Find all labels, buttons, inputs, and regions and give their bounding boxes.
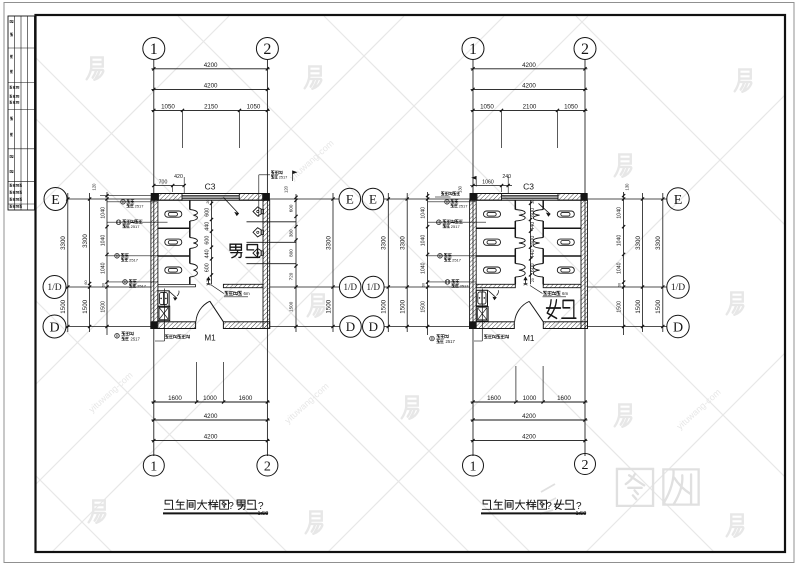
svg-text:600: 600 <box>530 263 536 272</box>
svg-text:1040: 1040 <box>100 207 106 219</box>
svg-text:60: 60 <box>422 283 426 287</box>
svg-text:1500: 1500 <box>82 299 89 313</box>
svg-text:1: 1 <box>470 459 477 474</box>
svg-text:C3: C3 <box>523 182 534 192</box>
svg-text:440: 440 <box>530 249 536 258</box>
svg-text:3300: 3300 <box>60 236 67 250</box>
svg-text:700: 700 <box>159 180 168 186</box>
svg-text:1050: 1050 <box>480 104 494 111</box>
svg-text:2517: 2517 <box>446 339 456 344</box>
svg-text:600: 600 <box>289 204 294 212</box>
svg-text:?: ? <box>546 501 552 512</box>
svg-text:3300: 3300 <box>325 236 332 250</box>
svg-text:E: E <box>346 191 354 206</box>
svg-text:1050: 1050 <box>247 104 261 111</box>
svg-text:D: D <box>346 319 355 334</box>
svg-text:3300: 3300 <box>400 236 407 250</box>
svg-text:1040: 1040 <box>616 235 622 247</box>
svg-text:1600: 1600 <box>168 395 182 402</box>
svg-text:1: 1 <box>150 459 157 474</box>
svg-text:C3: C3 <box>205 182 216 192</box>
svg-text:60: 60 <box>101 283 105 287</box>
svg-text:4200: 4200 <box>522 83 536 90</box>
svg-text:20: 20 <box>531 278 535 282</box>
svg-text:D: D <box>49 320 59 335</box>
svg-text:20: 20 <box>531 200 535 204</box>
svg-text:2517: 2517 <box>451 224 461 229</box>
svg-text:2: 2 <box>582 458 589 473</box>
svg-text:1040: 1040 <box>420 207 426 219</box>
svg-text:4200: 4200 <box>204 434 218 441</box>
svg-text:4200: 4200 <box>522 413 536 420</box>
svg-text:1000: 1000 <box>523 395 537 402</box>
svg-text:20: 20 <box>206 200 210 204</box>
svg-text:1040: 1040 <box>100 235 106 247</box>
svg-text:E: E <box>674 193 683 208</box>
svg-text:6m: 6m <box>562 291 568 296</box>
svg-text:2517: 2517 <box>452 257 462 262</box>
svg-text:1040: 1040 <box>616 262 622 274</box>
svg-text:2517: 2517 <box>459 203 469 208</box>
svg-text:M1: M1 <box>523 334 535 343</box>
svg-text:1500: 1500 <box>655 299 662 313</box>
svg-text:120: 120 <box>92 183 97 191</box>
svg-text:130: 130 <box>624 183 629 191</box>
svg-text:1500: 1500 <box>635 299 642 313</box>
svg-text:600: 600 <box>205 263 211 272</box>
svg-text:2517: 2517 <box>460 284 470 289</box>
svg-text:800: 800 <box>289 249 294 257</box>
svg-text:440: 440 <box>530 222 536 231</box>
svg-text:1040: 1040 <box>420 235 426 247</box>
svg-text:2: 2 <box>264 459 271 474</box>
svg-text:1/D: 1/D <box>343 282 357 292</box>
svg-text:2517: 2517 <box>137 284 147 289</box>
svg-text:1/D: 1/D <box>671 283 685 293</box>
svg-text:3300: 3300 <box>655 236 662 250</box>
svg-text:600: 600 <box>530 236 536 245</box>
svg-text:4200: 4200 <box>522 62 536 69</box>
svg-text:1500: 1500 <box>420 301 426 313</box>
svg-text:?: ? <box>228 501 234 512</box>
svg-text:1500: 1500 <box>100 301 106 313</box>
svg-text:440: 440 <box>205 222 211 231</box>
svg-text:1500: 1500 <box>325 299 332 313</box>
svg-text:420: 420 <box>174 174 183 180</box>
svg-text:2517: 2517 <box>131 224 141 229</box>
svg-text:E: E <box>369 191 377 206</box>
svg-text:1/D: 1/D <box>367 282 381 292</box>
svg-text:1600: 1600 <box>557 395 571 402</box>
svg-text:4200: 4200 <box>204 83 218 90</box>
svg-text:120: 120 <box>284 185 289 193</box>
svg-text:3300: 3300 <box>381 236 388 250</box>
svg-text:60: 60 <box>84 280 88 284</box>
svg-text:2517: 2517 <box>135 203 145 208</box>
svg-text:130: 130 <box>458 185 463 193</box>
svg-text:1500: 1500 <box>616 301 622 313</box>
svg-text:D: D <box>673 320 683 335</box>
svg-text:1050: 1050 <box>161 104 175 111</box>
svg-text:M1: M1 <box>204 334 216 343</box>
svg-text:720: 720 <box>289 272 294 280</box>
svg-text:2517: 2517 <box>131 336 141 341</box>
svg-text:1/D: 1/D <box>47 283 61 293</box>
svg-text:1600: 1600 <box>487 395 501 402</box>
svg-text:1: 1 <box>469 41 477 58</box>
svg-text:380: 380 <box>289 229 294 237</box>
svg-text:600: 600 <box>530 208 536 217</box>
svg-text:1500: 1500 <box>289 301 294 312</box>
svg-text:1050: 1050 <box>564 104 578 111</box>
svg-text:2: 2 <box>581 41 589 58</box>
svg-text:4200: 4200 <box>204 413 218 420</box>
svg-text:3300: 3300 <box>82 234 89 248</box>
svg-text:1000: 1000 <box>203 395 217 402</box>
svg-text:440: 440 <box>205 249 211 258</box>
svg-text:1: 1 <box>150 41 158 58</box>
svg-text:1600: 1600 <box>239 395 253 402</box>
svg-text:1040: 1040 <box>420 262 426 274</box>
svg-text:600: 600 <box>205 236 211 245</box>
svg-text:240: 240 <box>502 174 511 180</box>
svg-text:600: 600 <box>205 208 211 217</box>
svg-text:2100: 2100 <box>523 104 537 111</box>
svg-text:D: D <box>369 319 378 334</box>
svg-text:E: E <box>51 193 60 208</box>
svg-text:1040: 1040 <box>100 262 106 274</box>
svg-text:1060: 1060 <box>482 180 494 186</box>
svg-text:4200: 4200 <box>204 62 218 69</box>
svg-text:60: 60 <box>618 283 622 287</box>
svg-text:2150: 2150 <box>204 104 218 111</box>
svg-text:2: 2 <box>263 41 271 58</box>
svg-text:1500: 1500 <box>60 299 67 313</box>
svg-text:6m: 6m <box>244 291 250 296</box>
svg-text:3300: 3300 <box>635 236 642 250</box>
svg-text:1500: 1500 <box>381 299 388 313</box>
svg-text:1040: 1040 <box>616 207 622 219</box>
svg-text:4200: 4200 <box>522 434 536 441</box>
svg-text:1500: 1500 <box>400 299 407 313</box>
svg-text:2517: 2517 <box>279 174 288 179</box>
svg-text:2517: 2517 <box>129 257 139 262</box>
